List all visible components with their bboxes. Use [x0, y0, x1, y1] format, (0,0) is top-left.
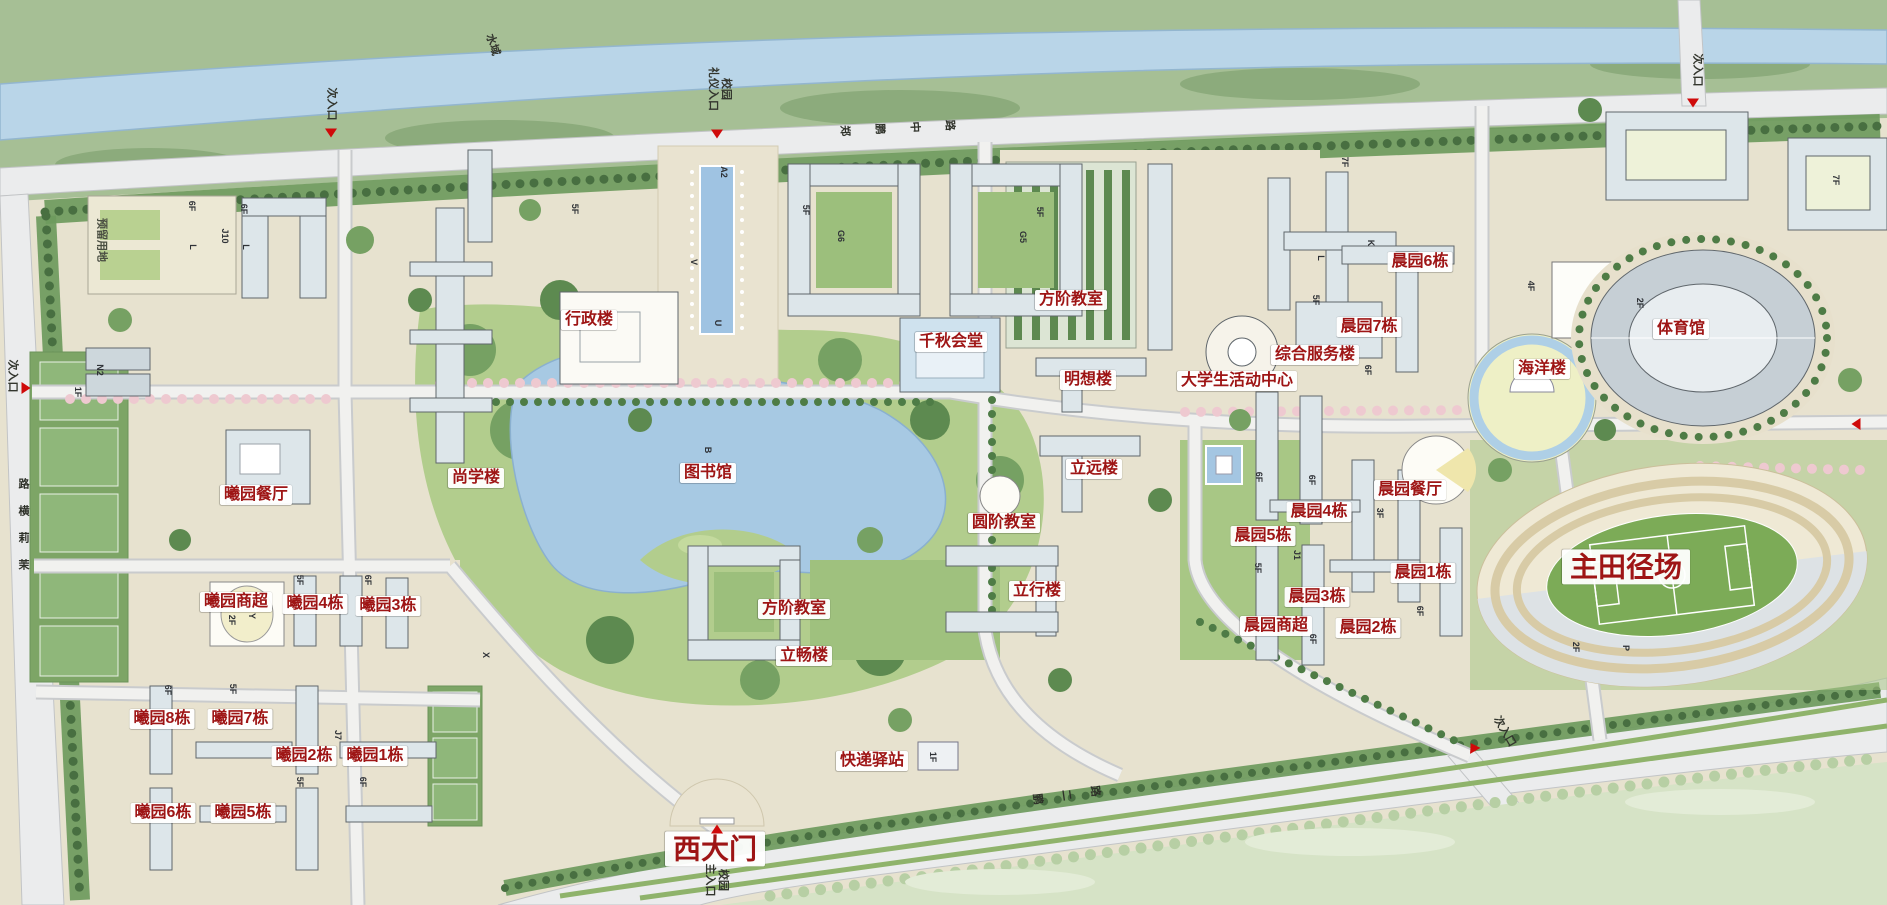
- building-label-20: 晨园4栋: [1287, 502, 1352, 522]
- building-label-33: 曦园1栋: [343, 746, 408, 766]
- building-code-21: 5F: [228, 684, 238, 695]
- building-code-2: 6F: [239, 204, 249, 215]
- building-code-27: 2F: [1635, 298, 1645, 309]
- building-code-32: 5F: [1311, 295, 1321, 306]
- entrance-arrow-icon: [711, 825, 723, 834]
- building-label-22: 晨园1栋: [1391, 563, 1456, 583]
- building-label-3: 曦园餐厅: [220, 485, 292, 505]
- building-code-13: B: [703, 447, 713, 454]
- building-label-5: 方阶教室: [1035, 290, 1107, 310]
- building-code-19: 6F: [363, 575, 373, 586]
- building-label-2: 图书馆: [680, 463, 736, 483]
- area-label-3: 校园 主入口: [703, 864, 729, 897]
- building-code-6: A2: [719, 166, 729, 178]
- building-label-7: 大学生活动中心: [1177, 371, 1297, 391]
- building-code-24: 6F: [358, 777, 368, 788]
- building-label-25: 晨园2栋: [1336, 618, 1401, 638]
- building-code-28: 7F: [1340, 157, 1350, 168]
- entrance-label-0: 次入口: [324, 88, 337, 121]
- building-code-18: 5F: [295, 575, 305, 586]
- building-label-9: 晨园7栋: [1337, 317, 1402, 337]
- building-code-33: 6F: [1363, 365, 1373, 376]
- building-label-10: 晨园6栋: [1388, 252, 1453, 272]
- building-code-3: L: [241, 244, 251, 250]
- building-code-41: 2F: [1571, 642, 1581, 653]
- entrance-arrow-icon: [1687, 99, 1699, 108]
- building-code-30: L: [1316, 255, 1326, 261]
- building-code-23: 5F: [295, 777, 305, 788]
- building-code-12: 5F: [1035, 207, 1045, 218]
- building-code-1: L: [188, 244, 198, 250]
- building-label-16: 方阶教室: [758, 599, 830, 619]
- building-code-36: 5F: [1253, 563, 1263, 574]
- area-label-0: 水域: [482, 33, 501, 58]
- building-code-4: J10: [220, 228, 230, 243]
- building-label-17: 立畅楼: [776, 646, 832, 666]
- entrance-arrow-icon: [325, 129, 337, 138]
- map-labels: 行政楼尚学楼图书馆曦园餐厅千秋会堂方阶教室明想楼大学生活动中心综合服务楼晨园7栋…: [0, 0, 1887, 905]
- building-label-8: 综合服务楼: [1271, 345, 1359, 365]
- building-label-26: 主田径场: [1562, 549, 1690, 584]
- road-name-label-0: 郑鹏中路: [840, 117, 957, 139]
- building-code-31: K: [1366, 240, 1376, 247]
- road-name-label-2: 茉莉横路: [16, 478, 32, 570]
- building-code-42: P: [1621, 645, 1631, 651]
- building-code-22: J7: [333, 730, 343, 740]
- building-label-23: 晨园3栋: [1285, 587, 1350, 607]
- entrance-label-1: 次入口: [1690, 54, 1703, 87]
- building-code-8: U: [713, 320, 723, 327]
- building-code-43: 1F: [928, 752, 938, 763]
- building-code-11: G5: [1018, 231, 1028, 243]
- building-label-21: 晨园5栋: [1231, 526, 1296, 546]
- building-label-1: 尚学楼: [448, 468, 504, 488]
- building-label-32: 曦园2栋: [272, 746, 337, 766]
- building-label-11: 海洋楼: [1514, 359, 1570, 379]
- building-code-20: 6F: [163, 685, 173, 696]
- building-code-10: 5F: [801, 205, 811, 216]
- area-label-2: 校园 礼仪入口: [706, 67, 732, 111]
- area-label-1: 预留用地: [94, 218, 107, 262]
- building-code-15: 1F: [73, 387, 83, 398]
- building-label-24: 晨园商超: [1240, 616, 1312, 636]
- building-label-29: 曦园3栋: [356, 596, 421, 616]
- building-label-34: 曦园6栋: [131, 803, 196, 823]
- building-label-28: 曦园4栋: [283, 594, 348, 614]
- building-code-37: J1: [1292, 550, 1302, 560]
- building-code-25: X: [481, 652, 491, 658]
- building-label-27: 曦园商超: [200, 592, 272, 612]
- building-code-9: G6: [836, 230, 846, 242]
- building-code-34: 6F: [1254, 472, 1264, 483]
- campus-map: 行政楼尚学楼图书馆曦园餐厅千秋会堂方阶教室明想楼大学生活动中心综合服务楼晨园7栋…: [0, 0, 1887, 905]
- entrance-arrow-icon: [22, 382, 31, 394]
- building-label-12: 体育馆: [1653, 319, 1709, 339]
- building-code-35: 6F: [1307, 475, 1317, 486]
- building-code-7: V: [689, 259, 699, 265]
- building-label-18: 快递驿站: [836, 751, 908, 771]
- building-code-29: 7F: [1831, 175, 1841, 186]
- building-code-40: 6F: [1308, 634, 1318, 645]
- building-label-36: 西大门: [665, 831, 765, 866]
- entrance-label-3: 次入口: [1490, 714, 1518, 749]
- building-code-14: N2: [95, 364, 105, 376]
- building-label-35: 曦园5栋: [211, 803, 276, 823]
- building-code-17: Y: [247, 613, 257, 619]
- building-code-16: 2F: [227, 615, 237, 626]
- building-label-14: 圆阶教室: [968, 513, 1040, 533]
- building-code-5: 5F: [570, 204, 580, 215]
- building-label-30: 曦园8栋: [130, 709, 195, 729]
- building-code-26: 4F: [1526, 281, 1536, 292]
- building-label-6: 明想楼: [1060, 370, 1116, 390]
- building-label-4: 千秋会堂: [915, 332, 987, 352]
- building-label-15: 立行楼: [1009, 581, 1065, 601]
- building-code-0: 6F: [187, 201, 197, 212]
- building-label-31: 曦园7栋: [208, 709, 273, 729]
- entrance-arrow-icon: [1852, 418, 1861, 430]
- road-name-label-1: 鹏二路: [1032, 782, 1103, 807]
- building-label-0: 行政楼: [561, 310, 617, 330]
- building-label-19: 晨园餐厅: [1374, 480, 1446, 500]
- entrance-arrow-icon: [711, 130, 723, 139]
- building-code-38: 3F: [1375, 508, 1385, 519]
- entrance-label-2: 次入口: [5, 360, 18, 393]
- building-code-39: 6F: [1415, 606, 1425, 617]
- entrance-arrow-icon: [1466, 740, 1481, 754]
- building-label-13: 立远楼: [1066, 459, 1122, 479]
